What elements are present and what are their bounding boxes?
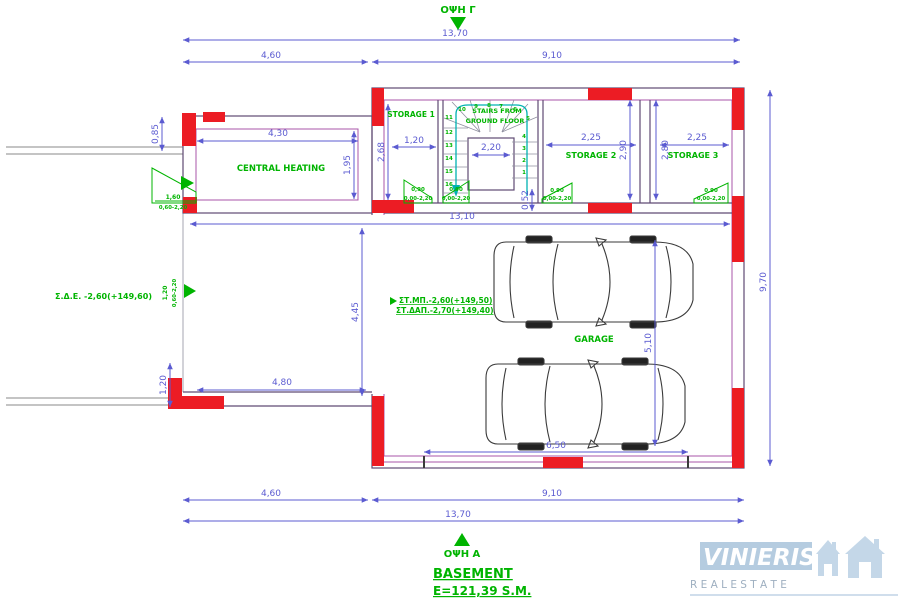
dim-garage-left: 4,45 bbox=[351, 302, 361, 322]
level-garage-bottom: ΣΤ.ΔΑΠ.-2,70(+149,40) bbox=[396, 306, 494, 315]
dim-garage-height: 5,10 bbox=[644, 333, 654, 353]
svg-text:1,60: 1,60 bbox=[166, 194, 181, 201]
dim-top-total: 13,70 bbox=[442, 29, 468, 39]
svg-text:0,90: 0,90 bbox=[449, 187, 463, 193]
room-storage1: STORAGE 1 bbox=[387, 110, 435, 119]
walls bbox=[183, 88, 744, 468]
dim-central-heating-width: 4,30 bbox=[268, 129, 288, 139]
dimensions: 13,70 4,60 9,10 9,70 4,60 9,10 13,70 0,8… bbox=[151, 29, 770, 521]
window-left-wall: 1,20 0,60-2,20 bbox=[162, 279, 196, 308]
room-storage3: STORAGE 3 bbox=[668, 151, 719, 160]
dim-drive-width: 4,80 bbox=[272, 378, 292, 388]
view-bottom-arrow-icon bbox=[454, 533, 470, 546]
floor-plan-canvas: 1 2 3 4 5 6 7 8 9 10 11 12 13 14 15 16 S… bbox=[0, 0, 900, 600]
staircase: 1 2 3 4 5 6 7 8 9 10 11 12 13 14 15 16 S… bbox=[443, 100, 538, 197]
svg-text:4: 4 bbox=[522, 134, 526, 140]
view-bottom-label: ΟΨΗ Α bbox=[444, 549, 481, 560]
dim-bottom-left: 4,60 bbox=[261, 489, 281, 499]
dim-top-right: 9,10 bbox=[542, 51, 562, 61]
dim-right-height: 9,70 bbox=[759, 272, 769, 292]
logo-house-icon bbox=[845, 536, 885, 578]
svg-text:1: 1 bbox=[522, 170, 526, 176]
street-lines bbox=[6, 147, 183, 405]
window-arrow-icon bbox=[184, 284, 196, 298]
dim-garage-door: 6,50 bbox=[546, 441, 566, 451]
stairs-note-line1: STAIRS FROM bbox=[472, 107, 521, 115]
dim-stairs-width: 2,20 bbox=[481, 143, 501, 153]
door-storage3: 0,90 0,00-2,20 bbox=[694, 183, 728, 203]
dim-landing: 0,52 bbox=[521, 190, 531, 210]
room-garage: GARAGE bbox=[574, 335, 614, 345]
dim-storage2-height: 2,90 bbox=[619, 140, 629, 160]
door-storage1: 0,90 0,00-2,20 bbox=[404, 180, 433, 203]
svg-text:0,90: 0,90 bbox=[550, 188, 564, 194]
dim-left-top: 0,85 bbox=[151, 124, 161, 144]
svg-text:0,90: 0,90 bbox=[411, 187, 425, 193]
svg-text:0,60-2,20: 0,60-2,20 bbox=[159, 205, 188, 211]
room-storage2: STORAGE 2 bbox=[566, 151, 617, 160]
svg-text:0,00-2,20: 0,00-2,20 bbox=[404, 196, 433, 202]
level-arrow-icon bbox=[390, 297, 397, 305]
stairs-note-line2: GROUND FLOOR bbox=[466, 117, 525, 125]
dim-central-heating-height: 1,95 bbox=[343, 155, 353, 175]
dim-storage2-width: 2,25 bbox=[581, 133, 601, 143]
svg-text:10: 10 bbox=[458, 107, 466, 113]
basement-floor-plan: 1 2 3 4 5 6 7 8 9 10 11 12 13 14 15 16 S… bbox=[0, 0, 900, 600]
svg-text:0,90: 0,90 bbox=[704, 188, 718, 194]
svg-text:12: 12 bbox=[445, 130, 453, 136]
svg-text:14: 14 bbox=[445, 156, 453, 162]
car-top-view bbox=[494, 236, 693, 328]
room-central-heating: CENTRAL HEATING bbox=[237, 164, 325, 174]
svg-text:0,60-2,20: 0,60-2,20 bbox=[172, 279, 178, 308]
dim-left-bottom: 1,20 bbox=[159, 375, 169, 395]
level-garage-top: ΣΤ.ΜΠ.-2,60(+149,50) bbox=[399, 296, 492, 305]
view-top-label: ΟΨΗ Γ bbox=[440, 5, 476, 16]
svg-text:0,00-2,20: 0,00-2,20 bbox=[442, 196, 471, 202]
svg-text:5: 5 bbox=[526, 116, 530, 122]
dim-storage1-width: 1,20 bbox=[404, 136, 424, 146]
svg-text:0,00-2,20: 0,00-2,20 bbox=[697, 196, 726, 202]
dim-top-left: 4,60 bbox=[261, 51, 281, 61]
svg-text:15: 15 bbox=[445, 169, 453, 175]
logo-subtitle: R E A L E S T A T E bbox=[690, 579, 787, 591]
svg-text:2: 2 bbox=[522, 158, 526, 164]
dim-storage3-width: 2,25 bbox=[687, 133, 707, 143]
dim-interior-width: 13,10 bbox=[449, 212, 475, 222]
page-title: BASEMENT bbox=[433, 567, 513, 582]
page-title-area: E=121,39 S.M. bbox=[433, 584, 531, 598]
svg-text:3: 3 bbox=[522, 146, 526, 152]
svg-text:1,20: 1,20 bbox=[162, 286, 169, 301]
svg-text:11: 11 bbox=[445, 115, 453, 121]
door-storage2: 0,90 0,00-2,20 bbox=[542, 183, 572, 203]
svg-text:13: 13 bbox=[445, 143, 453, 149]
dim-bottom-right: 9,10 bbox=[542, 489, 562, 499]
dim-storage1-height: 2,68 bbox=[377, 142, 387, 162]
vinieris-logo: VINIERIS R E A L E S T A T E bbox=[690, 536, 898, 595]
logo-brand: VINIERIS bbox=[703, 545, 816, 571]
level-side: Σ.Δ.Ε. -2,60(+149,60) bbox=[55, 292, 152, 301]
svg-text:0,00-2,20: 0,00-2,20 bbox=[543, 196, 572, 202]
dim-bottom-total: 13,70 bbox=[445, 510, 471, 520]
logo-house-icon bbox=[816, 540, 840, 576]
